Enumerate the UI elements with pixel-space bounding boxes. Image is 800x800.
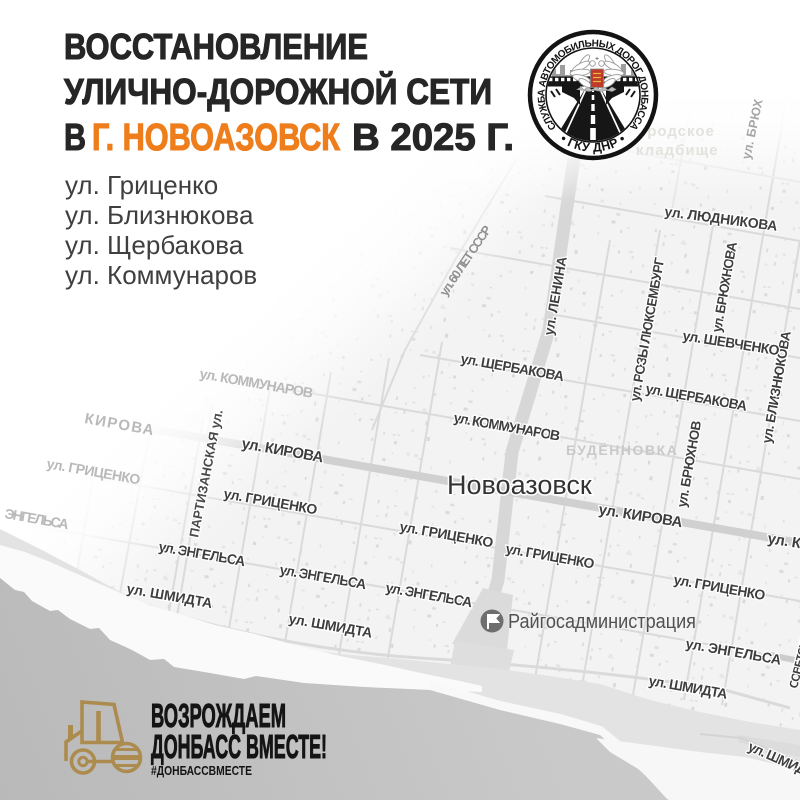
svg-text:#ДОНБАССВМЕСТЕ: #ДОНБАССВМЕСТЕ <box>151 764 252 778</box>
svg-text:Новоазовск: Новоазовск <box>447 470 592 500</box>
svg-text:УЛИЧНО-ДОРОЖНОЙ СЕТИ: УЛИЧНО-ДОРОЖНОЙ СЕТИ <box>64 70 492 112</box>
svg-text:БУДЁННОВКА: БУДЁННОВКА <box>566 442 677 458</box>
svg-text:ул. Коммунаров: ул. Коммунаров <box>65 260 257 290</box>
svg-text:Райгосадминистрация: Райгосадминистрация <box>508 610 696 633</box>
svg-text:ДОНБАСС ВМЕСТЕ!: ДОНБАСС ВМЕСТЕ! <box>151 728 327 765</box>
svg-text:ул. Гриценко: ул. Гриценко <box>65 170 218 200</box>
svg-text:Г. НОВОАЗОВСК: Г. НОВОАЗОВСК <box>92 117 341 159</box>
svg-text:ВОССТАНОВЛЕНИЕ: ВОССТАНОВЛЕНИЕ <box>64 26 368 67</box>
svg-text:ул. Близнюкова: ул. Близнюкова <box>65 200 254 230</box>
svg-text:В 2025 Г.: В 2025 Г. <box>352 117 514 159</box>
svg-text:В: В <box>64 117 86 159</box>
svg-text:ул. Щербакова: ул. Щербакова <box>65 230 244 260</box>
svg-text:кладбище: кладбище <box>636 142 719 159</box>
